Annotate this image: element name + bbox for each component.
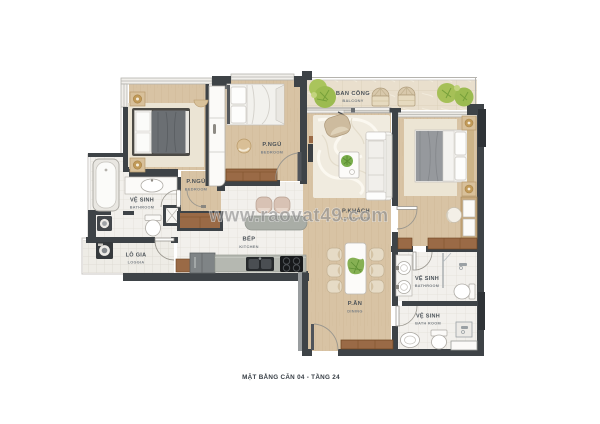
svg-text:BAN CÔNG: BAN CÔNG: [336, 89, 370, 97]
svg-text:BATHROOM: BATHROOM: [415, 284, 439, 288]
svg-text:P.ĂN: P.ĂN: [348, 300, 362, 307]
svg-text:www.raovat49.com: www.raovat49.com: [208, 206, 388, 227]
svg-text:DINING: DINING: [347, 309, 362, 314]
svg-text:LÔ GIA: LÔ GIA: [126, 251, 147, 259]
svg-text:P.NGỦ: P.NGỦ: [186, 178, 205, 185]
svg-text:BEDROOM: BEDROOM: [261, 150, 283, 155]
svg-text:BALCONY: BALCONY: [342, 98, 363, 103]
svg-text:P.NGỦ: P.NGỦ: [262, 141, 281, 148]
svg-text:BATHROOM: BATHROOM: [130, 206, 154, 210]
svg-text:VỆ SINH: VỆ SINH: [130, 196, 154, 204]
svg-text:BATH ROOM: BATH ROOM: [415, 322, 441, 326]
svg-text:KITCHEN: KITCHEN: [239, 244, 258, 249]
svg-text:LOGGIA: LOGGIA: [128, 261, 145, 265]
svg-text:VỆ SINH: VỆ SINH: [416, 312, 440, 320]
svg-text:BẾP: BẾP: [243, 236, 256, 243]
svg-text:BEDROOM: BEDROOM: [185, 187, 207, 192]
svg-text:VỆ SINH: VỆ SINH: [415, 274, 439, 282]
